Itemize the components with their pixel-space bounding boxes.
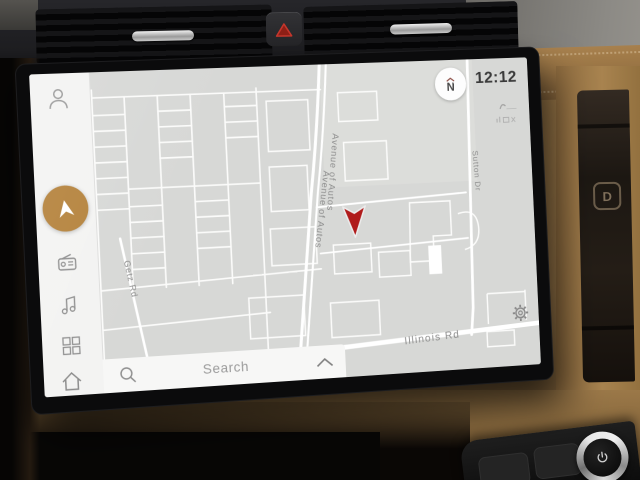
chevron-up-icon[interactable] xyxy=(313,354,336,373)
screen-display: Avenue of Autos Avenue of Autos Sutton D… xyxy=(29,57,541,397)
clock: 12:12 xyxy=(475,67,518,88)
sidebar-item-navigation-active[interactable] xyxy=(42,185,90,233)
map-settings-button[interactable] xyxy=(511,303,530,328)
search-placeholder: Search xyxy=(202,358,249,377)
dashboard-photo: D xyxy=(0,0,640,480)
defender-trim-panel: D xyxy=(577,89,635,382)
compass-label: N xyxy=(446,81,454,91)
dashboard-corner xyxy=(0,0,38,30)
profile-icon xyxy=(45,85,72,111)
map[interactable]: Avenue of Autos Avenue of Autos Sutton D… xyxy=(29,57,541,397)
sidebar-item-home[interactable] xyxy=(58,368,85,394)
radio-icon xyxy=(55,251,80,276)
home-icon xyxy=(58,368,85,394)
sidebar-item-music[interactable] xyxy=(57,292,82,317)
power-volume-knob[interactable] xyxy=(574,429,632,480)
climate-button[interactable] xyxy=(533,442,583,479)
apps-grid-icon xyxy=(60,334,83,357)
under-screen-shadow xyxy=(0,432,380,480)
sidebar-item-apps[interactable] xyxy=(60,334,83,357)
power-icon xyxy=(594,449,612,467)
knob-face xyxy=(581,436,623,478)
map-building xyxy=(428,245,442,274)
vent-slider-handle[interactable] xyxy=(132,30,194,41)
sidebar-item-profile[interactable] xyxy=(45,85,72,111)
screen-bezel: Avenue of Autos Avenue of Autos Sutton D… xyxy=(15,46,555,415)
infotainment-screen: Avenue of Autos Avenue of Autos Sutton D… xyxy=(15,46,555,415)
navigation-arrow-icon xyxy=(53,196,78,221)
defender-badge: D xyxy=(593,182,622,211)
hazard-warning-icon xyxy=(275,21,293,37)
gear-icon xyxy=(511,303,530,323)
vent-slider-handle[interactable] xyxy=(390,23,452,35)
climate-button[interactable] xyxy=(478,452,532,480)
hazard-lights-button[interactable] xyxy=(266,12,303,47)
trim-groove xyxy=(578,123,630,128)
media-info-icon xyxy=(495,111,519,129)
sidebar-item-radio[interactable] xyxy=(55,251,80,276)
search-icon[interactable] xyxy=(117,363,140,391)
music-note-icon xyxy=(57,292,82,317)
trim-groove xyxy=(582,325,634,330)
